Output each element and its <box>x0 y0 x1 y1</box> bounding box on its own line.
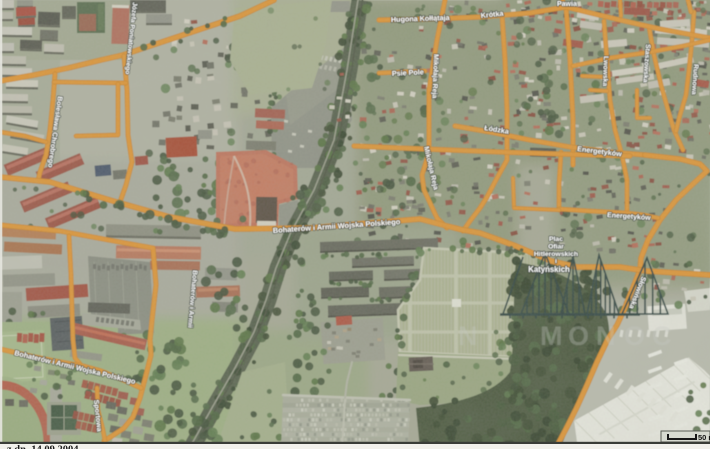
svg-text:M: M <box>540 321 563 351</box>
svg-text:Psie Pole: Psie Pole <box>392 67 424 78</box>
svg-text:O: O <box>568 321 589 351</box>
svg-text:Hitlerowskich: Hitlerowskich <box>534 251 578 258</box>
svg-text:Lwowska: Lwowska <box>601 56 609 87</box>
svg-text:N: N <box>596 321 616 351</box>
svg-text:N: N <box>458 321 478 351</box>
svg-text:i: i <box>555 258 557 265</box>
svg-text:z dn. 14.09.2004: z dn. 14.09.2004 <box>7 445 79 449</box>
svg-text:Pawia: Pawia <box>557 1 577 8</box>
svg-text:Katyńskich: Katyńskich <box>528 265 570 274</box>
svg-text:50 m: 50 m <box>698 433 710 442</box>
svg-text:C: C <box>652 321 672 351</box>
svg-text:O: O <box>624 321 645 351</box>
svg-text:Ofiar: Ofiar <box>548 244 564 251</box>
svg-text:Plac: Plac <box>549 236 563 243</box>
